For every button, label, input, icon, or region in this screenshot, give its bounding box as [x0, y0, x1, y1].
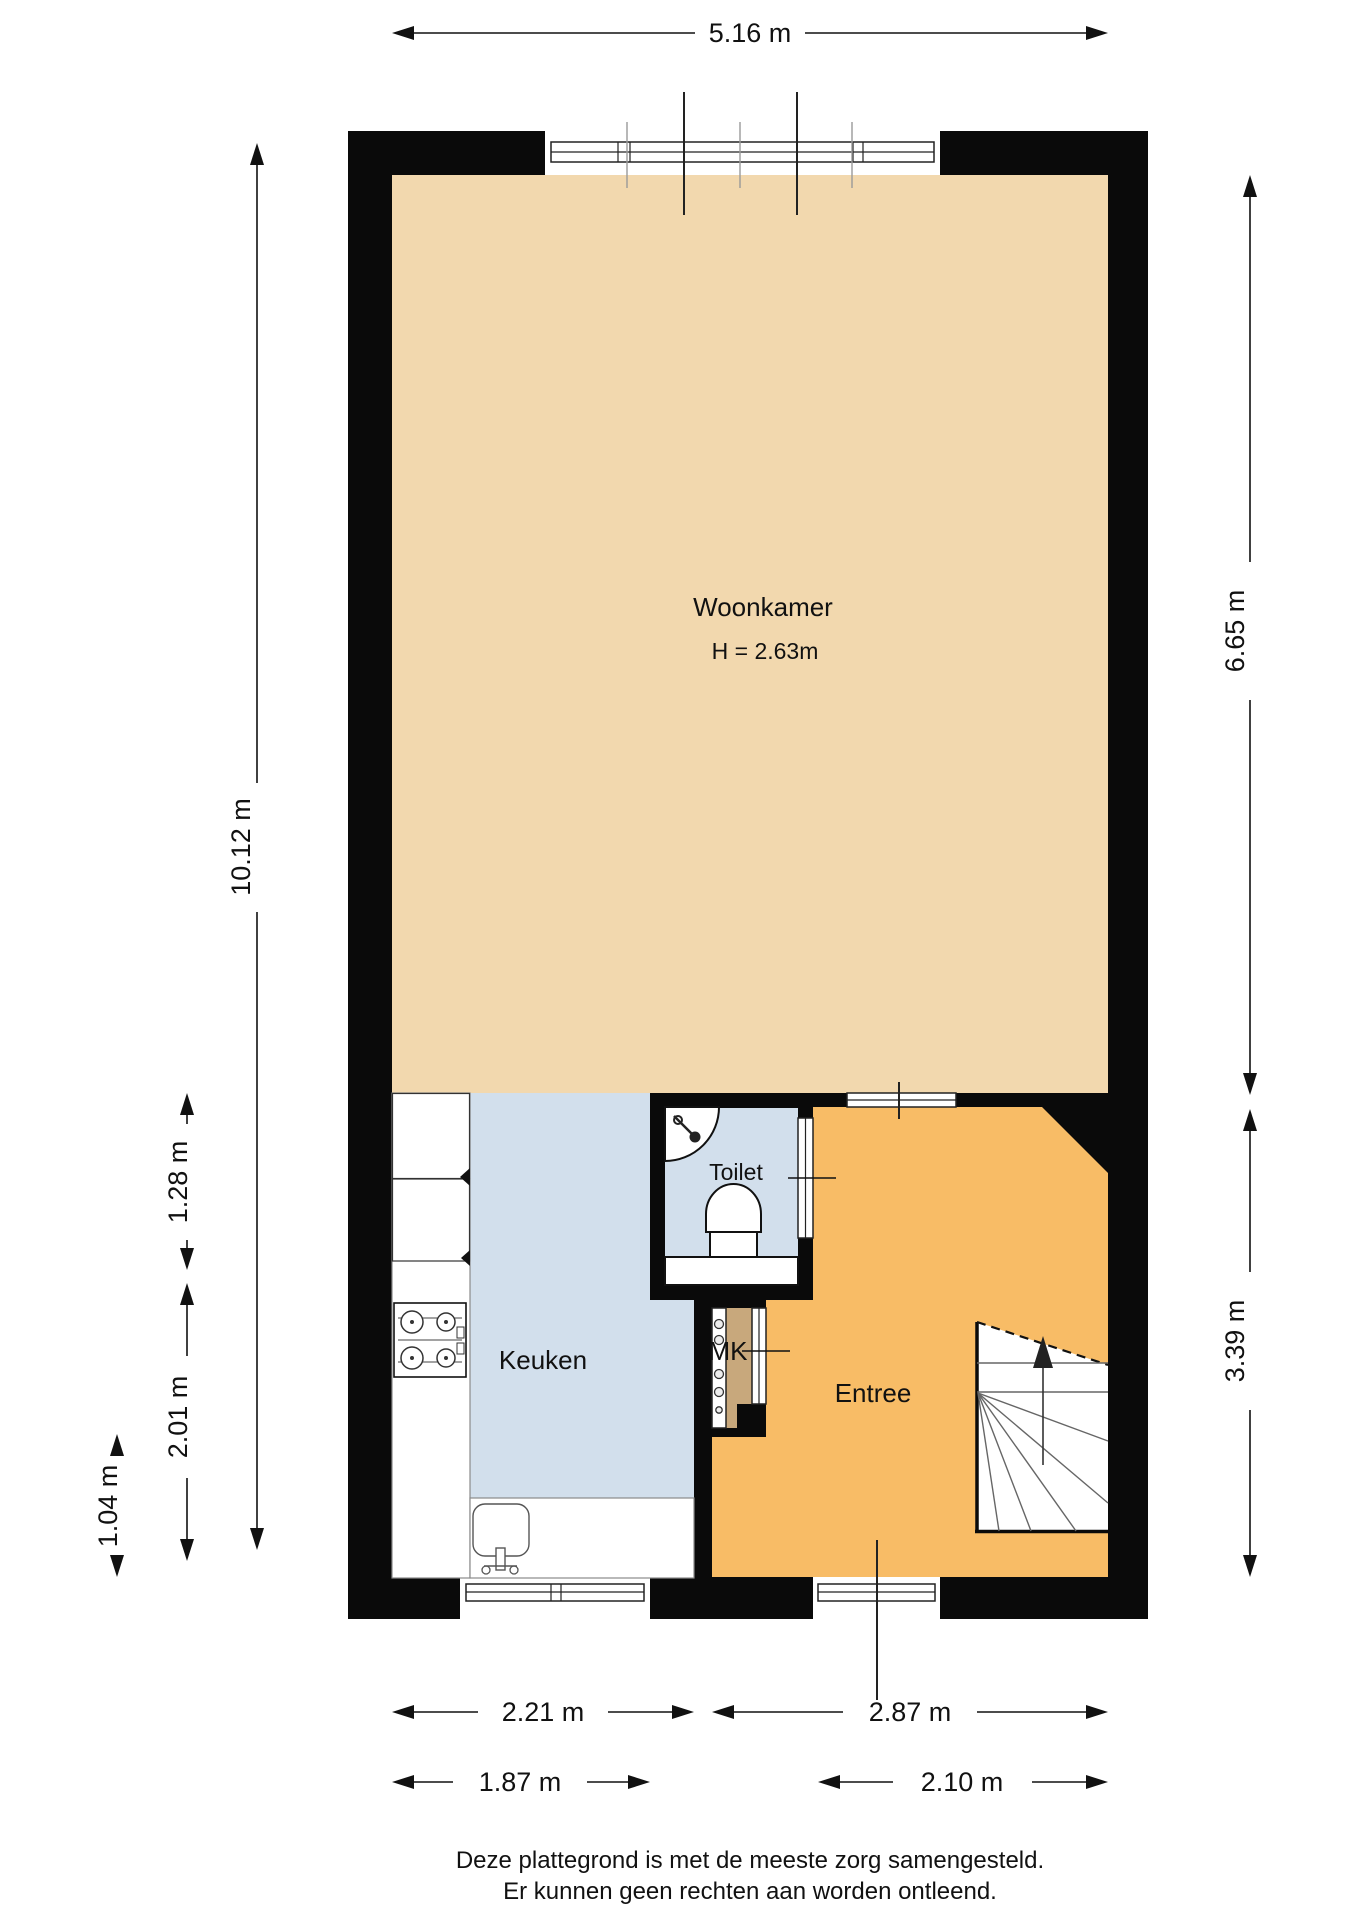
dim-bottom-entree-value: 2.87 m — [869, 1697, 952, 1727]
dim-left-kitchen-upper-value: 1.28 m — [163, 1141, 193, 1224]
wall-bottom-middle — [650, 1577, 813, 1619]
hob-burner-center — [444, 1356, 448, 1360]
mk-meter-icon — [715, 1320, 724, 1329]
dim-bottom-kitchen-window-value: 1.87 m — [479, 1767, 562, 1797]
wall-bottom-right — [940, 1577, 1148, 1619]
dim-bottom-kitchen-window: 1.87 m — [392, 1767, 650, 1797]
toilet-wall-bottom — [650, 1285, 813, 1300]
dim-right-entree: 3.39 m — [1220, 1109, 1257, 1577]
entree-label: Entree — [835, 1378, 912, 1408]
toilet-base — [710, 1232, 757, 1257]
keuken-label: Keuken — [499, 1345, 587, 1375]
mk-meter-icon — [716, 1407, 722, 1413]
wall-right — [1108, 131, 1148, 1619]
woonkamer-floor — [392, 175, 1108, 1093]
dim-bottom-entree-window: 2.10 m — [818, 1767, 1108, 1797]
wall-bottom-left — [348, 1577, 460, 1619]
dim-bottom-kitchen-value: 2.21 m — [502, 1697, 585, 1727]
dim-bottom-entree: 2.87 m — [712, 1697, 1108, 1727]
dim-top-width: 5.16 m — [392, 18, 1108, 48]
wall-divider-segment — [813, 1093, 847, 1107]
mk-wall-corner — [737, 1404, 766, 1437]
toilet-label: Toilet — [709, 1159, 763, 1185]
toilet-wall-left — [650, 1093, 665, 1300]
footer-line-1: Deze plattegrond is met de meeste zorg s… — [456, 1847, 1044, 1874]
dim-left-total: 10.12 m — [226, 143, 264, 1550]
toilet-bowl — [706, 1184, 761, 1232]
dim-bottom-entree-window-value: 2.10 m — [921, 1767, 1004, 1797]
toilet-room — [665, 1107, 798, 1285]
hob-burner-center — [444, 1320, 448, 1324]
footer-disclaimer: Deze plattegrond is met de meeste zorg s… — [456, 1847, 1044, 1905]
dim-left-counter-value: 1.04 m — [93, 1465, 123, 1548]
dim-left-kitchen-lower: 2.01 m — [163, 1283, 194, 1561]
floorplan-drawing: Woonkamer H = 2.63m Keuken Toilet Entree… — [0, 0, 1358, 1920]
woonkamer-height-note: H = 2.63m — [712, 638, 819, 664]
dim-left-counter: 1.04 m — [93, 1434, 124, 1577]
mk-meter-icon — [715, 1388, 724, 1397]
woonkamer-label: Woonkamer — [693, 592, 833, 622]
mk-meter-icon — [715, 1370, 724, 1379]
mk-wall-top — [694, 1300, 766, 1308]
hob-burner-center — [410, 1320, 414, 1324]
toilet-cistern-shelf — [665, 1257, 798, 1285]
dim-right-woonkamer: 6.65 m — [1220, 175, 1257, 1095]
toilet-wall-top — [650, 1093, 813, 1108]
floorplan-page: Woonkamer H = 2.63m Keuken Toilet Entree… — [0, 0, 1358, 1920]
basin-drain — [690, 1132, 701, 1143]
dim-left-total-value: 10.12 m — [226, 798, 256, 896]
hob-burner-center — [410, 1356, 414, 1360]
dim-left-kitchen-upper: 1.28 m — [163, 1093, 194, 1270]
dim-left-kitchen-lower-value: 2.01 m — [163, 1376, 193, 1459]
dim-bottom-kitchen: 2.21 m — [392, 1697, 694, 1727]
footer-line-2: Er kunnen geen rechten aan worden ontlee… — [503, 1878, 997, 1905]
wall-left — [348, 131, 392, 1619]
dim-right-woonkamer-value: 6.65 m — [1220, 590, 1250, 673]
dim-top-width-value: 5.16 m — [709, 18, 792, 48]
dim-right-entree-value: 3.39 m — [1220, 1300, 1250, 1383]
